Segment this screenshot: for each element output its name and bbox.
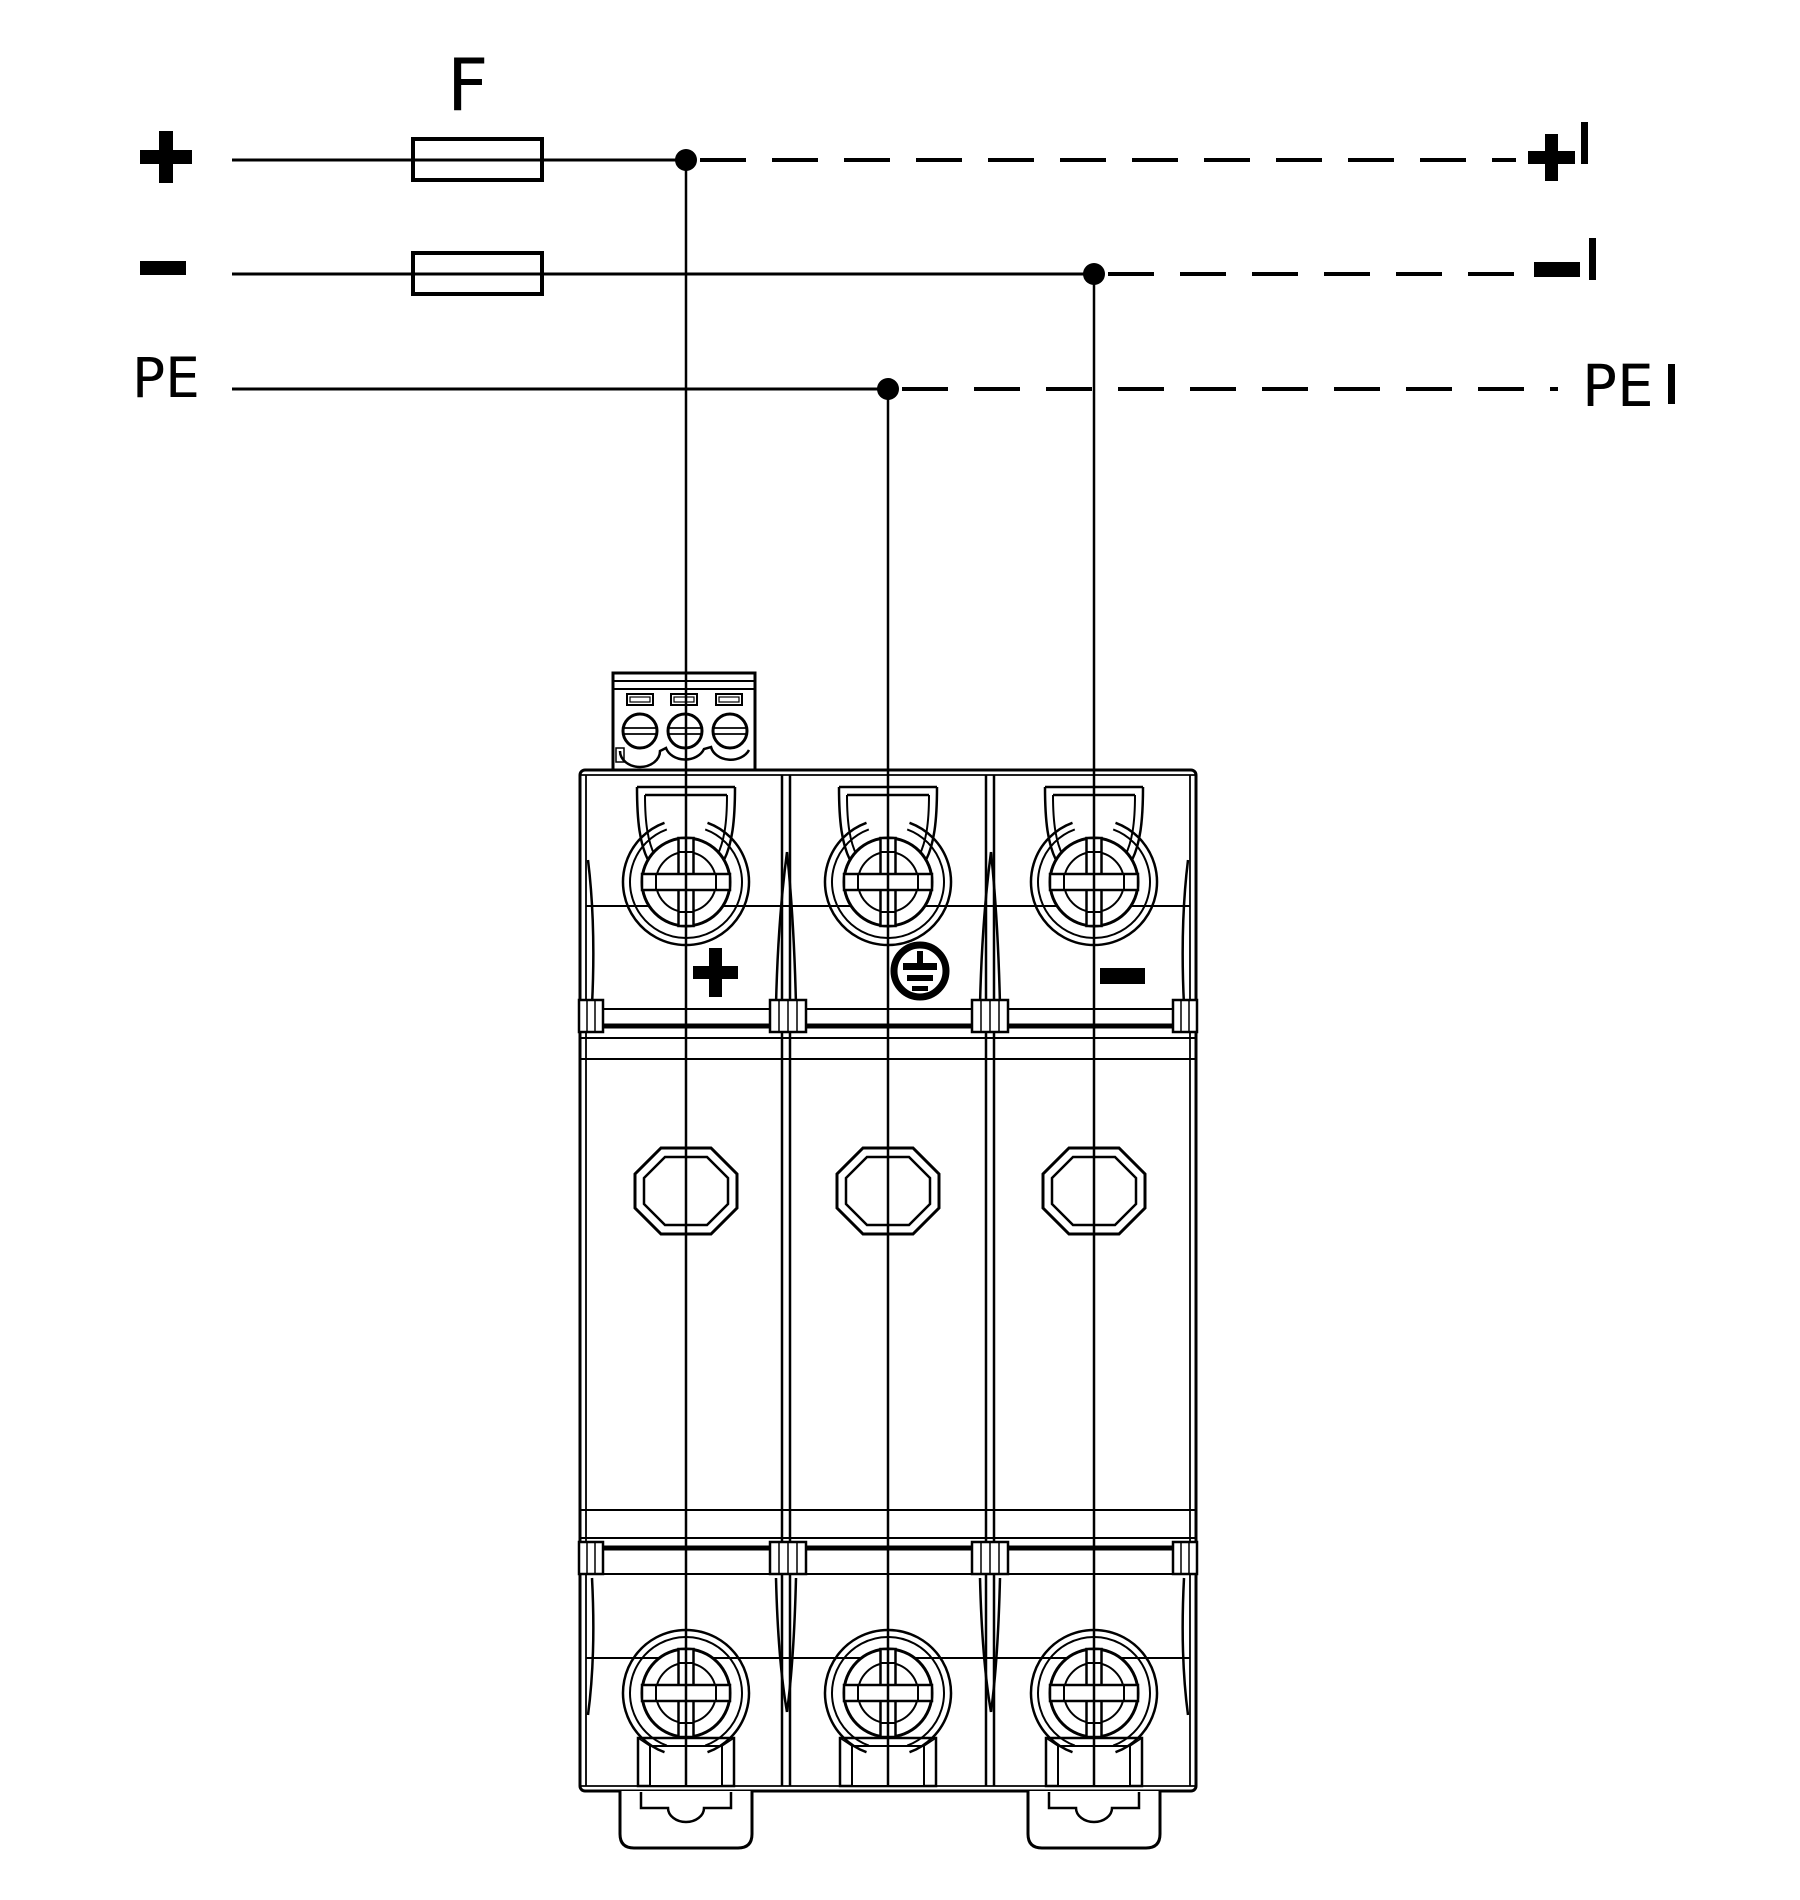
din-rail-clip-right bbox=[1028, 1791, 1160, 1848]
input-terminal-minus-label bbox=[140, 261, 186, 275]
output-terminal-pe-label: PE bbox=[1582, 352, 1675, 420]
prime-mark bbox=[1668, 364, 1675, 404]
wiring-diagram: F PE PE bbox=[132, 43, 1675, 420]
module-foot bbox=[1173, 1000, 1197, 1032]
module-foot bbox=[770, 1000, 806, 1032]
svg-text:PE: PE bbox=[1582, 352, 1654, 420]
output-terminal-minus-label bbox=[1534, 238, 1596, 280]
din-rail-clip-left bbox=[620, 1791, 752, 1848]
input-terminal-pe-label: PE bbox=[132, 346, 200, 410]
prime-mark bbox=[1589, 238, 1596, 280]
module-foot bbox=[972, 1000, 1008, 1032]
module-foot bbox=[579, 1000, 603, 1032]
wire-row-pe bbox=[232, 378, 1558, 400]
module-foot bbox=[1173, 1542, 1197, 1574]
wire-row-negative bbox=[232, 253, 1526, 294]
wire-row-positive bbox=[232, 139, 1516, 180]
output-terminal-plus-label bbox=[1528, 122, 1588, 181]
module-foot bbox=[770, 1542, 806, 1574]
input-terminal-plus-label bbox=[140, 131, 192, 183]
prime-mark bbox=[1581, 122, 1588, 164]
module-foot bbox=[579, 1542, 603, 1574]
device-label-minus bbox=[1100, 968, 1145, 984]
diagram-canvas: F PE PE bbox=[0, 0, 1800, 1900]
module-foot bbox=[972, 1542, 1008, 1574]
fuse-label: F bbox=[447, 43, 488, 127]
remote-contact-block bbox=[613, 673, 755, 770]
